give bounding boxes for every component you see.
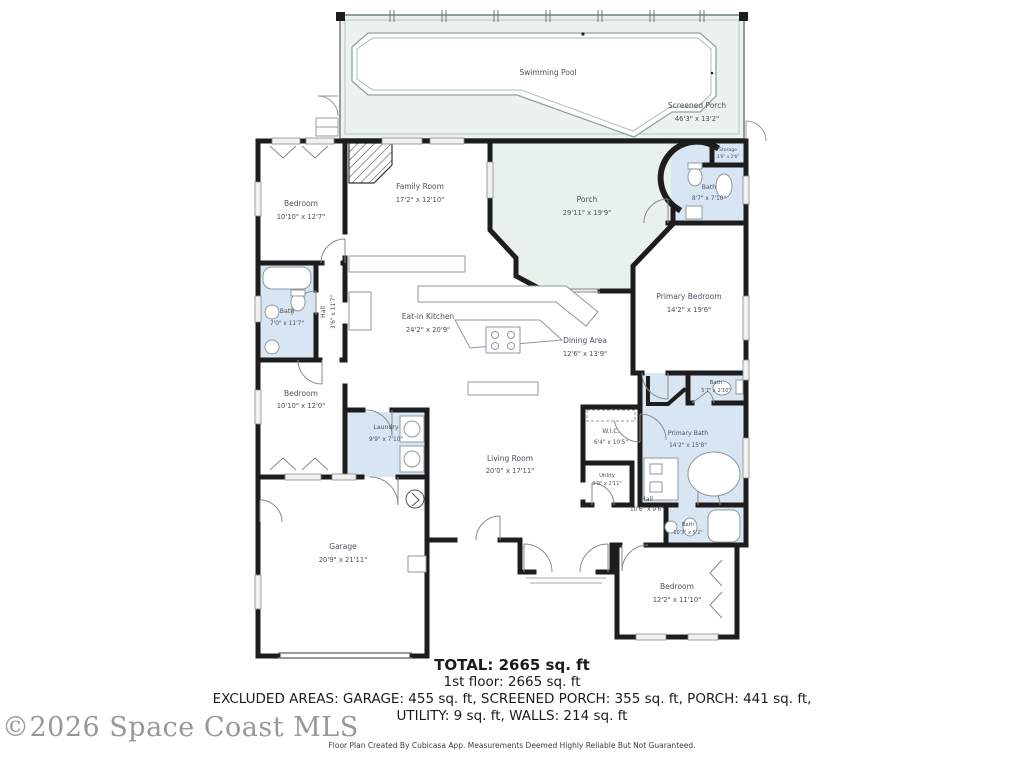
svg-text:Screened Porch: Screened Porch — [668, 101, 726, 110]
water-heater — [406, 490, 424, 508]
svg-text:3'0" x 2'11": 3'0" x 2'11" — [592, 481, 621, 487]
room-label-dining: Dining Area 12'6" x 13'9" — [563, 336, 607, 358]
svg-text:Bath: Bath — [710, 380, 723, 386]
room-label-utility: Utility 3'0" x 2'11" — [592, 473, 621, 487]
excluded-areas-line1: EXCLUDED AREAS: GARAGE: 455 sq. ft, SCRE… — [0, 691, 1024, 708]
svg-text:Hall: Hall — [641, 496, 653, 503]
svg-text:Garage: Garage — [329, 542, 357, 551]
svg-text:14'2" x 19'6": 14'2" x 19'6" — [667, 306, 711, 314]
svg-text:Bedroom: Bedroom — [284, 199, 318, 208]
sink — [265, 340, 279, 354]
svg-text:Bath: Bath — [280, 308, 294, 315]
svg-text:W.I.C.: W.I.C. — [602, 428, 619, 435]
svg-text:46'3" x 13'2": 46'3" x 13'2" — [675, 115, 719, 123]
svg-text:17'2" x 12'10": 17'2" x 12'10" — [396, 196, 445, 204]
svg-text:6'4" x 10'5": 6'4" x 10'5" — [594, 440, 628, 446]
svg-text:Dining Area: Dining Area — [563, 336, 607, 345]
svg-text:9'9" x 7'10": 9'9" x 7'10" — [369, 437, 403, 443]
room-label-bedroom-3: Bedroom 12'2" x 11'10" — [653, 582, 702, 604]
disclaimer-footer: Floor Plan Created By Cubicasa App. Meas… — [0, 741, 1024, 750]
svg-text:10'10" x 12'7": 10'10" x 12'7" — [277, 213, 326, 221]
first-floor-area: 1st floor: 2665 sq. ft — [0, 674, 1024, 691]
stove — [486, 327, 520, 353]
counter — [349, 256, 465, 272]
svg-text:Porch: Porch — [577, 195, 598, 204]
svg-text:Laundry: Laundry — [373, 424, 399, 431]
room-label-bedroom-1: Bedroom 10'10" x 12'7" — [277, 199, 326, 221]
utility-panel — [408, 556, 426, 572]
counter — [468, 382, 538, 395]
sink — [650, 464, 662, 474]
svg-text:10'6" x 9'6": 10'6" x 9'6" — [630, 507, 664, 513]
room-label-bedroom-2: Bedroom 10'10" x 12'0" — [277, 389, 326, 410]
room-label-hall-left: Hall 3'6" x 11'7" — [320, 295, 337, 329]
svg-text:10'3" x 5'2": 10'3" x 5'2" — [673, 530, 702, 536]
svg-text:10'10" x 12'0": 10'10" x 12'0" — [277, 402, 326, 410]
fridge — [349, 292, 371, 330]
svg-text:Bath: Bath — [702, 184, 716, 191]
svg-text:Family Room: Family Room — [396, 182, 444, 191]
sink — [265, 305, 279, 319]
room-label-wic: W.I.C. 6'4" x 10'5" — [594, 428, 628, 446]
svg-text:Hall: Hall — [320, 306, 327, 318]
svg-text:3'6" x 2'6": 3'6" x 2'6" — [717, 154, 740, 160]
corner-tub — [688, 452, 740, 496]
room-label-primary-bedroom: Primary Bedroom 14'2" x 19'6" — [656, 292, 721, 314]
svg-text:Living Room: Living Room — [487, 454, 533, 463]
bathtub — [263, 267, 311, 289]
room-label-swimming-pool: Swimming Pool — [519, 68, 576, 77]
post-corner — [336, 12, 345, 21]
post-corner — [739, 12, 748, 21]
room-label-family-room: Family Room 17'2" x 12'10" — [396, 182, 445, 204]
svg-text:Bedroom: Bedroom — [284, 389, 318, 398]
svg-text:12'6" x 13'9": 12'6" x 13'9" — [563, 350, 607, 358]
toilet-tank — [291, 290, 305, 296]
svg-text:Bedroom: Bedroom — [660, 582, 694, 591]
entry-steps — [526, 578, 606, 583]
svg-text:7'0" x 11'7": 7'0" x 11'7" — [270, 321, 304, 327]
svg-text:Primary Bedroom: Primary Bedroom — [656, 292, 721, 301]
svg-text:14'2" x 15'8": 14'2" x 15'8" — [669, 443, 707, 449]
room-label-living-room: Living Room 20'0" x 17'11" — [486, 454, 535, 475]
svg-text:Storage: Storage — [719, 147, 737, 153]
fireplace — [349, 143, 392, 183]
sink — [650, 482, 662, 492]
closet-shelf — [587, 410, 635, 421]
mls-watermark: ©2026 Space Coast MLS — [2, 712, 359, 743]
svg-text:12'2" x 11'10": 12'2" x 11'10" — [653, 596, 702, 604]
bathtub — [708, 510, 740, 542]
svg-text:Swimming Pool: Swimming Pool — [519, 68, 576, 77]
svg-text:Bath: Bath — [682, 522, 695, 528]
sink — [686, 206, 702, 219]
screen-door-arc — [318, 96, 338, 116]
room-label-kitchen: Eat-in Kitchen 24'2" x 20'9" — [402, 312, 455, 334]
svg-text:3'6" x 11'7": 3'6" x 11'7" — [331, 295, 337, 329]
toilet-tank — [688, 163, 702, 169]
svg-text:5'7" x 2'10": 5'7" x 2'10" — [701, 388, 730, 394]
sink — [716, 174, 732, 198]
total-area: TOTAL: 2665 sq. ft — [0, 656, 1024, 674]
svg-text:29'11" x 19'9": 29'11" x 19'9" — [563, 209, 612, 217]
room-label-garage: Garage 20'9" x 21'11" — [319, 542, 368, 564]
floor-plan-svg: Swimming Pool Screened Porch 46'3" x 13'… — [0, 0, 1024, 768]
svg-text:Eat-in Kitchen: Eat-in Kitchen — [402, 312, 455, 321]
svg-text:24'2" x 20'9": 24'2" x 20'9" — [406, 326, 450, 334]
toilet-tank — [736, 380, 743, 394]
toilet — [688, 168, 702, 186]
svg-text:20'9" x 21'11": 20'9" x 21'11" — [319, 556, 368, 564]
svg-text:Primary Bath: Primary Bath — [668, 430, 708, 437]
floor-plan-page: Swimming Pool Screened Porch 46'3" x 13'… — [0, 0, 1024, 768]
svg-text:Utility: Utility — [599, 473, 616, 479]
svg-text:20'0" x 17'11": 20'0" x 17'11" — [486, 467, 535, 475]
svg-text:8'7" x 7'10": 8'7" x 7'10" — [692, 196, 726, 202]
screen-door-arc — [746, 121, 766, 141]
